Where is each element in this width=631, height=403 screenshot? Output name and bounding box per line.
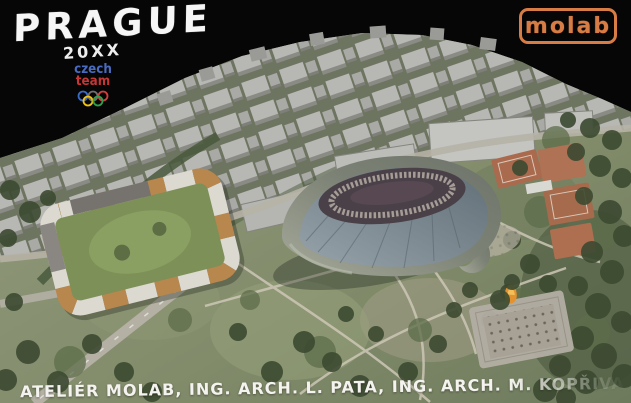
czech-team-line2: team <box>73 76 113 88</box>
czech-team-logo: czech team <box>71 64 115 112</box>
molab-logo-label: molab <box>525 14 611 39</box>
poster-stage: PRAGUE 20XX czech team molab ATELIÉR MOL… <box>0 0 631 403</box>
molab-logo: molab <box>519 8 617 44</box>
olympic-rings-icon <box>74 90 112 108</box>
